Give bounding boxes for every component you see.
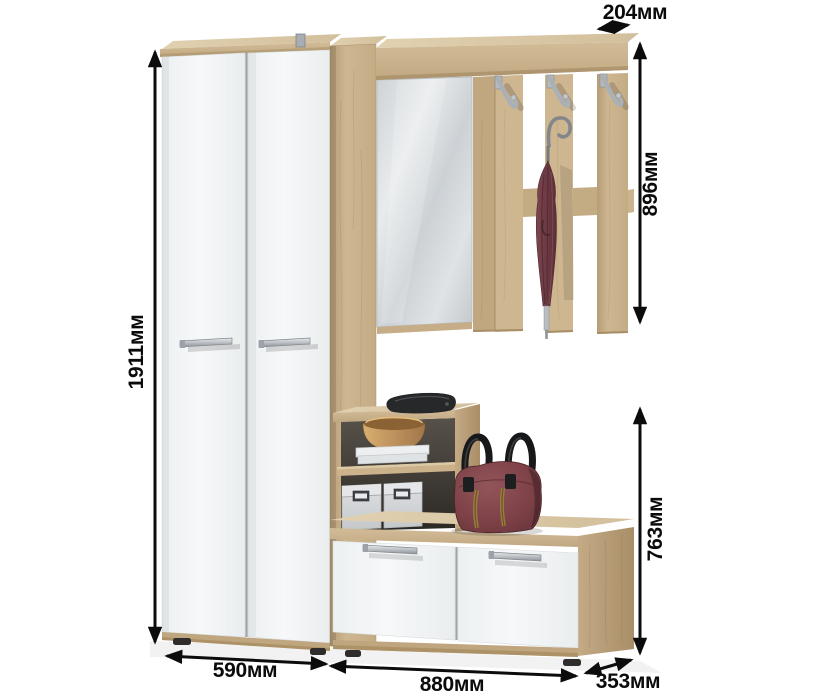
handbag-clasp <box>505 474 516 489</box>
furniture-illustration <box>0 0 816 700</box>
dimension-label-wardrobe-width: 590мм <box>185 659 305 683</box>
handbag-clasp <box>463 477 474 492</box>
dimension-label-cabinet-width: 880мм <box>392 673 512 697</box>
rack-right-post <box>597 73 628 334</box>
mirror-panel <box>377 77 472 334</box>
handle-end-cap <box>259 340 264 348</box>
furniture-dimension-diagram: 204мм 896мм 1911мм 763мм 590мм 880мм 353… <box>0 0 816 700</box>
dimension-label-total-height: 1911мм <box>125 292 149 412</box>
bench-foot <box>563 659 581 666</box>
rack-post-connector <box>628 189 634 213</box>
dimension-label-top-depth: 204мм <box>575 1 695 25</box>
handle-end-cap <box>180 340 185 348</box>
wardrobe-left-door-shade <box>162 57 169 632</box>
wardrobe-foot <box>310 648 326 655</box>
wardrobe-foot <box>173 638 191 645</box>
umbrella-tip <box>545 330 548 339</box>
handle-end-cap <box>489 551 494 559</box>
handbag <box>451 436 543 536</box>
umbrella-shaft <box>547 146 550 162</box>
storage-box <box>342 484 381 530</box>
dimension-label-rack-height: 896мм <box>639 124 663 244</box>
rack-slat <box>495 75 523 332</box>
rack-mid-rail <box>573 187 597 216</box>
top-board <box>376 33 639 80</box>
wardrobe-right-door-shade <box>248 53 256 637</box>
pillar-top-face <box>330 36 387 46</box>
clutch-bag <box>387 393 456 413</box>
dimension-label-bench-height: 763мм <box>644 469 668 589</box>
umbrella-ferrule <box>544 306 549 330</box>
mount-bracket <box>296 34 305 47</box>
handle-end-cap <box>363 544 368 552</box>
bench-foot <box>345 650 361 657</box>
wardrobe <box>160 34 341 655</box>
rack-left-post <box>473 76 495 332</box>
handbag-body <box>454 462 541 533</box>
dimension-arrow-top-depth <box>599 25 628 29</box>
dimension-label-side-depth: 353мм <box>568 670 688 694</box>
